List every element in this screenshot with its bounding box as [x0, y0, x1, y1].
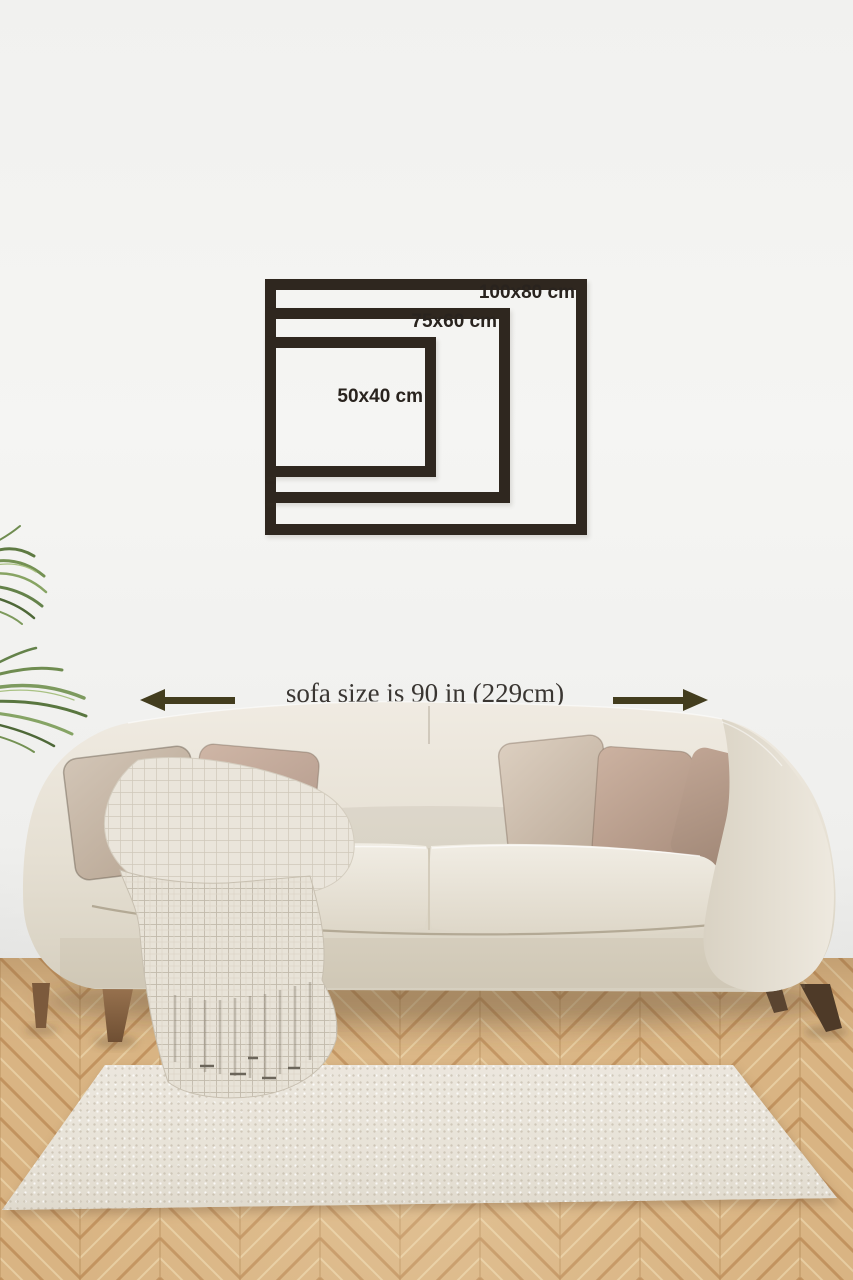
rug-shadow-wrap [0, 1058, 853, 1228]
size-frame-50x40 [265, 337, 436, 477]
left-arrow-shaft [160, 697, 235, 704]
living-room-size-guide-scene: 100x80 cm 75x60 cm 50x40 cm sofa size is… [0, 0, 853, 1280]
area-rug [0, 1058, 853, 1228]
right-arrowhead-icon [683, 689, 708, 711]
size-label-50x40: 50x40 cm [337, 387, 423, 406]
size-label-100x80: 100x80 cm [479, 283, 575, 302]
size-label-75x60: 75x60 cm [411, 312, 497, 331]
right-arrow-shaft [613, 697, 688, 704]
sofa-width-label: sofa size is 90 in (229cm) [250, 676, 600, 711]
right-arrow-icon [613, 689, 708, 711]
left-arrow-icon [140, 689, 235, 711]
